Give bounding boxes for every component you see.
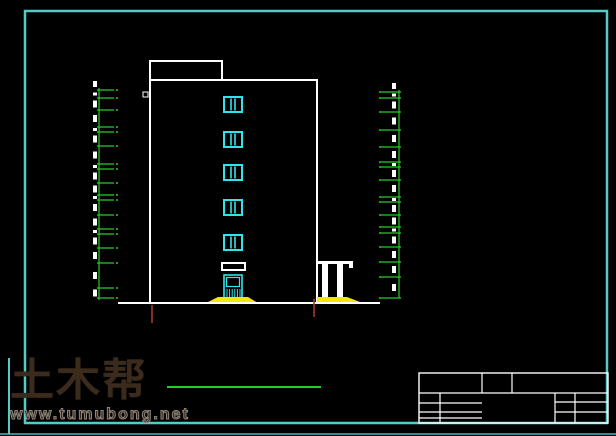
left-dimension-chain-value-mark: [93, 272, 97, 279]
left-dimension-chain-tick-dot: [116, 262, 118, 264]
right-dimension-chain-value-mark: [392, 198, 396, 201]
right-dimension-chain-value-mark: [392, 170, 396, 177]
right-dimension-chain-value-mark: [392, 118, 396, 125]
door-glass-panel: [227, 278, 240, 287]
left-dimension-chain-tick-dot: [116, 163, 118, 165]
left-dimension-chain-value-mark: [93, 128, 97, 131]
right-dimension-chain-tick-dot: [379, 246, 381, 248]
left-dimension-chain-value-mark: [93, 196, 97, 199]
right-dimension-chain-tick-dot: [379, 91, 381, 93]
left-dimension-chain-value-mark: [93, 290, 97, 297]
right-dimension-chain-tick-dot: [379, 166, 381, 168]
building-elevation-drawing: [0, 0, 616, 436]
left-dimension-chain-value-mark: [93, 165, 97, 168]
left-dimension-chain-value-mark: [93, 173, 97, 180]
left-dimension-chain-value-mark: [93, 136, 97, 143]
left-dimension-chain-tick-dot: [116, 131, 118, 133]
right-dimension-chain-value-mark: [392, 205, 396, 212]
right-dimension-chain-tick-dot: [379, 201, 381, 203]
right-dimension-chain-value-mark: [392, 237, 396, 244]
right-dimension-chain-tick-dot: [379, 226, 381, 228]
right-dimension-chain-tick-dot: [379, 111, 381, 113]
right-dimension-chain-tick-dot: [379, 97, 381, 99]
porch-column: [322, 264, 328, 298]
right-dimension-chain-value-mark: [392, 185, 396, 192]
right-dimension-chain-tick-dot: [379, 261, 381, 263]
title-block: [419, 373, 608, 423]
right-dimension-chain-value-mark: [392, 218, 396, 225]
left-dimension-chain-value-mark: [93, 101, 97, 108]
porch-beam-cap: [349, 264, 353, 268]
porch-column: [337, 264, 343, 298]
left-dimension-chain-tick-dot: [116, 97, 118, 99]
porch-beam: [318, 261, 353, 264]
left-dimension-chain-tick-dot: [116, 145, 118, 147]
right-dimension-chain-value-mark: [392, 102, 396, 109]
left-dimension-chain-tick-dot: [116, 194, 118, 196]
left-dimension-chain-value-mark: [93, 252, 97, 259]
right-dimension-chain-tick-dot: [379, 146, 381, 148]
right-dimension-chain-tick-dot: [379, 297, 381, 299]
right-dimension-chain-value-mark: [392, 135, 396, 142]
entrance-canopy: [222, 263, 245, 270]
left-dimension-chain-tick-dot: [116, 233, 118, 235]
level-marker: [143, 92, 148, 97]
left-dimension-chain-tick-dot: [116, 182, 118, 184]
right-dimension-chain-tick-dot: [379, 214, 381, 216]
left-dimension-chain-tick-dot: [116, 168, 118, 170]
right-dimension-chain-value-mark: [392, 251, 396, 258]
window: [224, 165, 242, 180]
left-dimension-chain-value-mark: [93, 115, 97, 122]
left-dimension-chain-value-mark: [93, 238, 97, 245]
window: [224, 132, 242, 147]
left-dimension-chain-tick-dot: [116, 247, 118, 249]
left-dimension-chain-tick-dot: [116, 89, 118, 91]
right-dimension-chain-tick-dot: [379, 129, 381, 131]
left-dimension-chain-tick-dot: [116, 228, 118, 230]
left-dimension-chain-tick-dot: [116, 126, 118, 128]
right-dimension-chain-value-mark: [392, 266, 396, 273]
left-dimension-chain-tick-dot: [116, 214, 118, 216]
right-dimension-chain-value-mark: [392, 94, 396, 97]
window: [224, 200, 242, 215]
roof-bulkhead: [150, 61, 222, 80]
right-dimension-chain-value-mark: [392, 151, 396, 158]
left-dimension-chain-value-mark: [93, 186, 97, 193]
cad-drawing-viewer: 土木帮 www.tumubong.net: [0, 0, 616, 436]
right-dimension-chain-value-mark: [392, 229, 396, 232]
right-dimension-chain-tick-dot: [379, 232, 381, 234]
window: [224, 97, 242, 112]
left-dimension-chain-value-mark: [93, 81, 97, 87]
right-dimension-chain-tick-dot: [379, 161, 381, 163]
left-dimension-chain-value-mark: [93, 93, 97, 96]
left-dimension-chain-value-mark: [93, 219, 97, 226]
left-dimension-chain-tick-dot: [116, 109, 118, 111]
right-dimension-chain-value-mark: [392, 163, 396, 166]
left-dimension-chain-tick-dot: [116, 297, 118, 299]
left-dimension-chain-value-mark: [93, 230, 97, 233]
right-dimension-chain-tick-dot: [379, 196, 381, 198]
left-dimension-chain-value-mark: [93, 204, 97, 211]
left-dimension-chain-tick-dot: [116, 287, 118, 289]
right-dimension-chain-tick-dot: [379, 276, 381, 278]
window: [224, 235, 242, 250]
right-dimension-chain-tick-dot: [379, 179, 381, 181]
right-dimension-chain-value-mark: [392, 83, 396, 89]
right-dimension-chain-value-mark: [392, 284, 396, 291]
left-dimension-chain-value-mark: [93, 152, 97, 159]
left-dimension-chain-tick-dot: [116, 199, 118, 201]
